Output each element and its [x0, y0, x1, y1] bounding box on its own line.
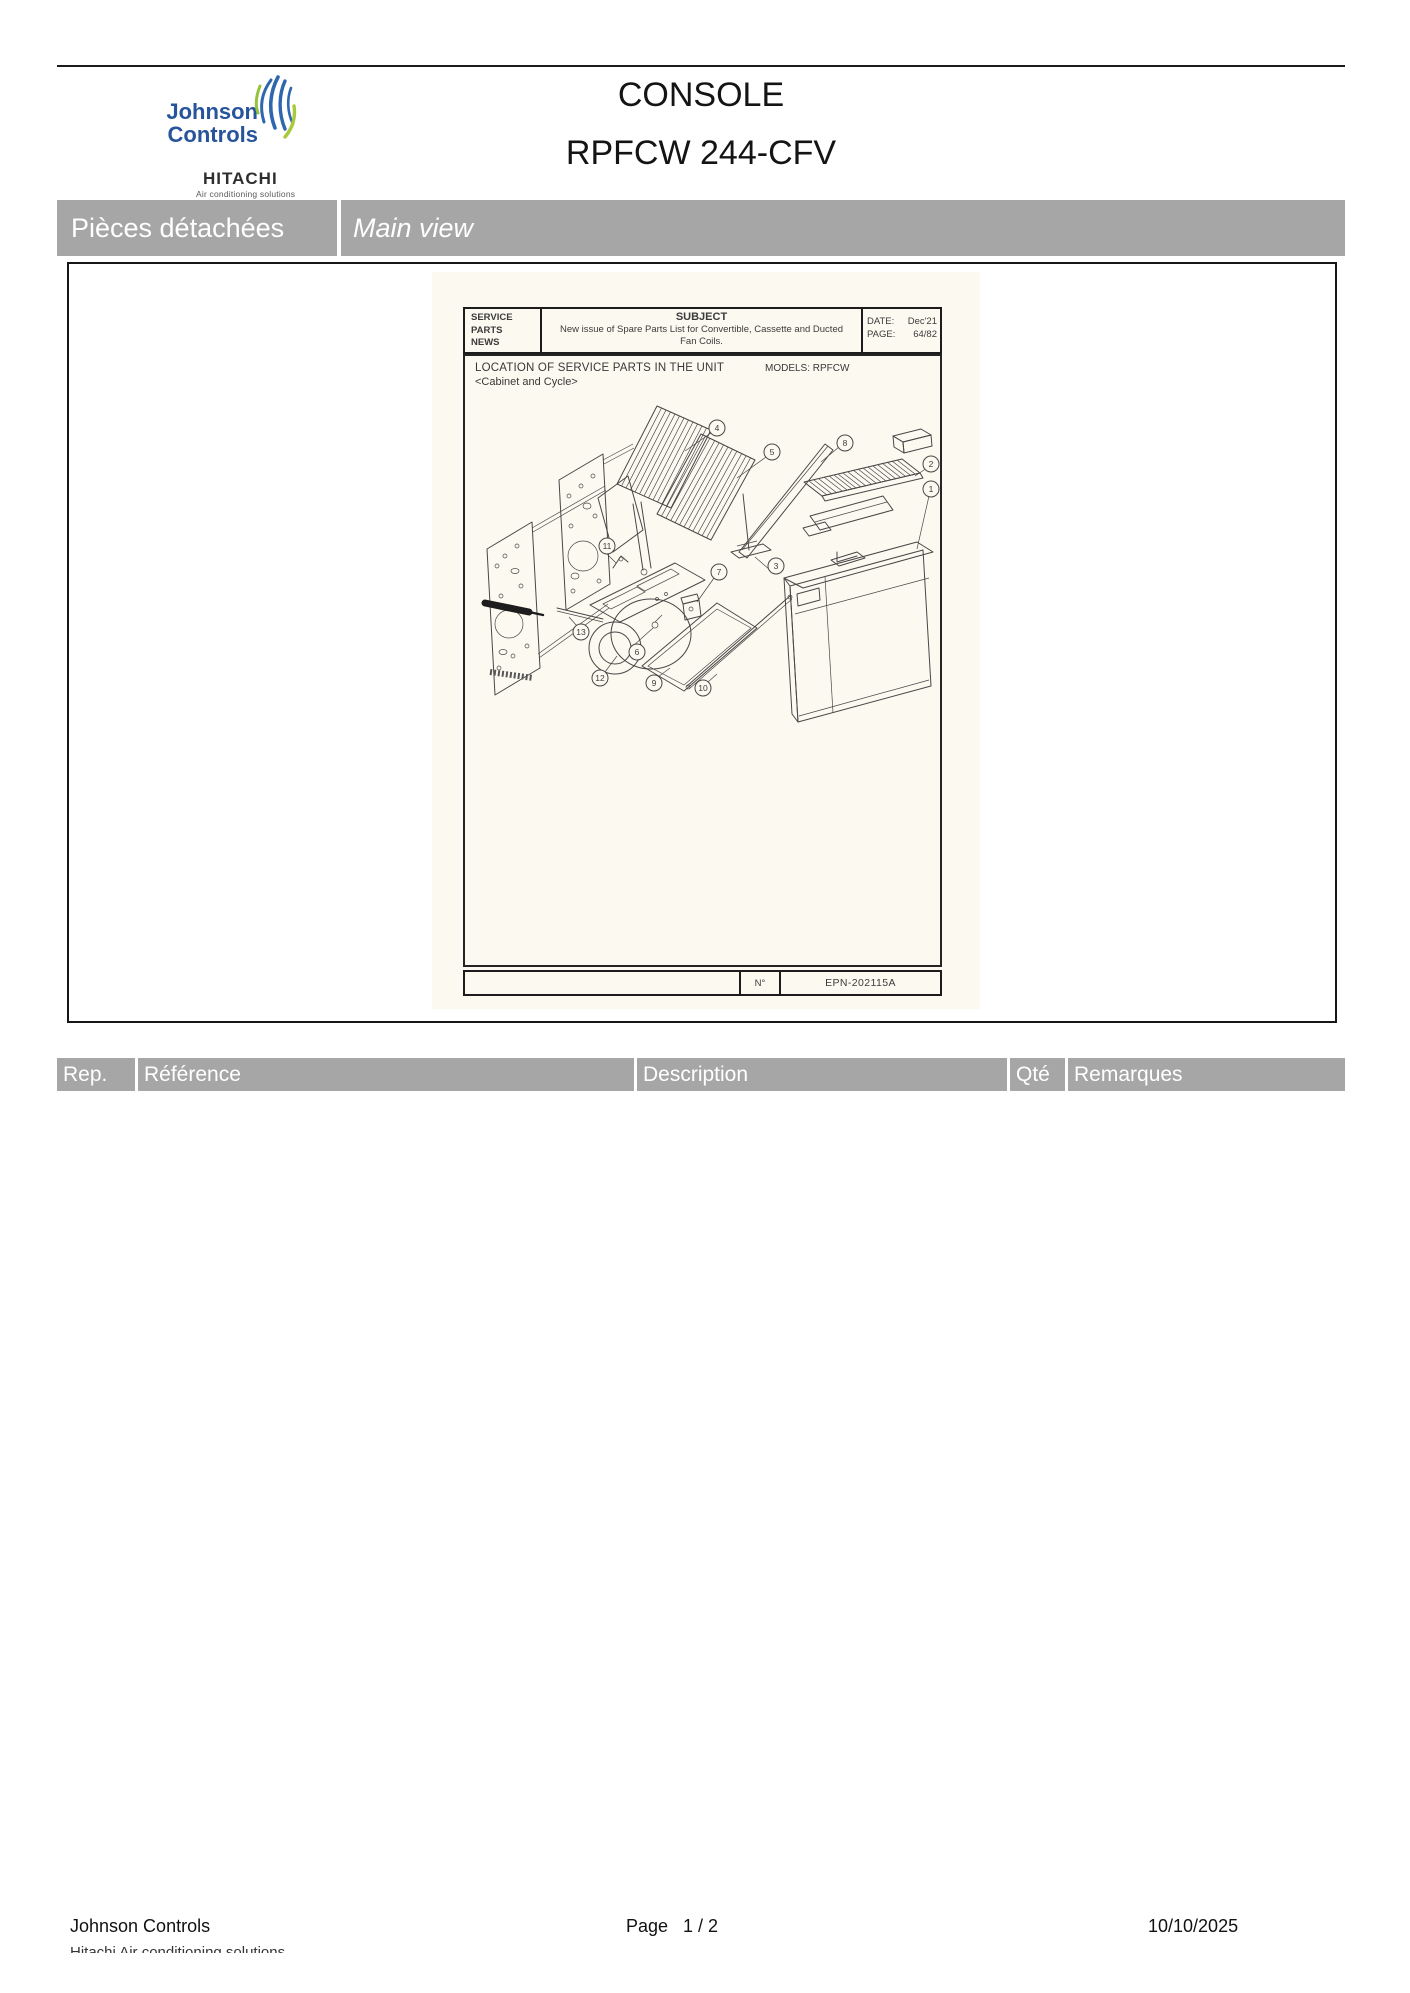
- callout-number: 11: [603, 541, 612, 551]
- column-header-rep: Rep.: [57, 1058, 135, 1091]
- footer-page-value: 1 / 2: [683, 1916, 718, 1936]
- subject-text: New issue of Spare Parts List for Conver…: [542, 323, 861, 348]
- spn-date-cell: DATE: Dec'21 PAGE: 64/82: [863, 309, 940, 352]
- callout-number: 13: [576, 627, 586, 637]
- column-header-remarks: Remarques: [1068, 1058, 1345, 1091]
- doc-footer-epn: EPN-202115A: [781, 970, 942, 996]
- diagram-body-box: 1 2 3 4 5 6 7 8 9 10 11 12 13 LOCATION O…: [463, 354, 942, 967]
- callout-number: 1: [929, 484, 934, 494]
- footer-date: 10/10/2025: [1148, 1916, 1238, 1937]
- section-label-pieces-detachees: Pièces détachées: [57, 200, 337, 256]
- callout-number: 7: [717, 567, 722, 577]
- callout-5: 5: [764, 444, 780, 460]
- callout-number: 8: [843, 438, 848, 448]
- doc-footer-strip: N° EPN-202115A: [463, 970, 942, 996]
- callout-number: 4: [715, 423, 720, 433]
- spn-header-table: SERVICE PARTS NEWS SUBJECT New issue of …: [463, 307, 942, 354]
- spn-left-line: NEWS: [471, 337, 540, 350]
- spn-left-cell: SERVICE PARTS NEWS: [465, 309, 542, 352]
- doc-page-value: 64/82: [913, 328, 937, 341]
- diagram-frame: SERVICE PARTS NEWS SUBJECT New issue of …: [67, 262, 1337, 1023]
- doc-page-label: PAGE:: [867, 328, 895, 341]
- callout-9: 9: [646, 675, 662, 691]
- column-header-reference: Référence: [138, 1058, 634, 1091]
- callout-number: 6: [635, 647, 640, 657]
- section-bar: Pièces détachées Main view: [57, 200, 1345, 256]
- spn-subject-cell: SUBJECT New issue of Spare Parts List fo…: [542, 309, 863, 352]
- callout-3: 3: [768, 558, 784, 574]
- section-label-main-view: Main view: [341, 200, 1345, 256]
- spn-left-line: SERVICE: [471, 312, 540, 325]
- model-subtitle: RPFCW 244-CFV: [57, 134, 1345, 173]
- callout-2: 2: [923, 456, 939, 472]
- document-page: { "header": { "brand": { "line1": "Johns…: [0, 0, 1410, 1993]
- models-label: MODELS: RPFCW: [765, 363, 849, 374]
- callout-12: 12: [592, 670, 608, 686]
- date-label: DATE:: [867, 315, 894, 328]
- location-title: LOCATION OF SERVICE PARTS IN THE UNIT: [475, 362, 724, 374]
- footer-clipped-text: Hitachi Air conditioning solutions: [70, 1944, 330, 1953]
- column-header-qty: Qté: [1010, 1058, 1065, 1091]
- spn-left-line: PARTS: [471, 325, 540, 338]
- exploded-view-diagram: 1 2 3 4 5 6 7 8 9 10 11 12 13: [465, 356, 940, 965]
- callout-number: 12: [595, 673, 605, 683]
- header-divider-rule: [57, 65, 1345, 67]
- date-value: Dec'21: [908, 315, 937, 328]
- callout-number: 10: [698, 683, 708, 693]
- callout-number: 3: [774, 561, 779, 571]
- doc-footer-empty-cell: [463, 970, 741, 996]
- doc-footer-no-label: N°: [741, 970, 781, 996]
- callout-number: 5: [770, 447, 775, 457]
- callout-4: 4: [709, 420, 725, 436]
- callout-number: 2: [929, 459, 934, 469]
- callout-7: 7: [711, 564, 727, 580]
- column-header-description: Description: [637, 1058, 1007, 1091]
- callout-1: 1: [923, 481, 939, 497]
- callout-11: 11: [599, 538, 615, 554]
- footer-page-indicator: Page 1 / 2: [57, 1916, 1287, 1937]
- parts-table-header: Rep. Référence Description Qté Remarques: [57, 1058, 1345, 1091]
- callout-13: 13: [573, 624, 589, 640]
- footer-page-label: Page: [626, 1916, 668, 1936]
- scanned-document-page: SERVICE PARTS NEWS SUBJECT New issue of …: [432, 272, 980, 1009]
- callout-6: 6: [629, 644, 645, 660]
- callout-10: 10: [695, 680, 711, 696]
- hitachi-tagline: Air conditioning solutions: [196, 189, 295, 199]
- subject-label: SUBJECT: [542, 311, 861, 323]
- callout-8: 8: [837, 435, 853, 451]
- location-subtitle: <Cabinet and Cycle>: [475, 376, 578, 388]
- page-title: CONSOLE: [57, 76, 1345, 115]
- callout-number: 9: [652, 678, 657, 688]
